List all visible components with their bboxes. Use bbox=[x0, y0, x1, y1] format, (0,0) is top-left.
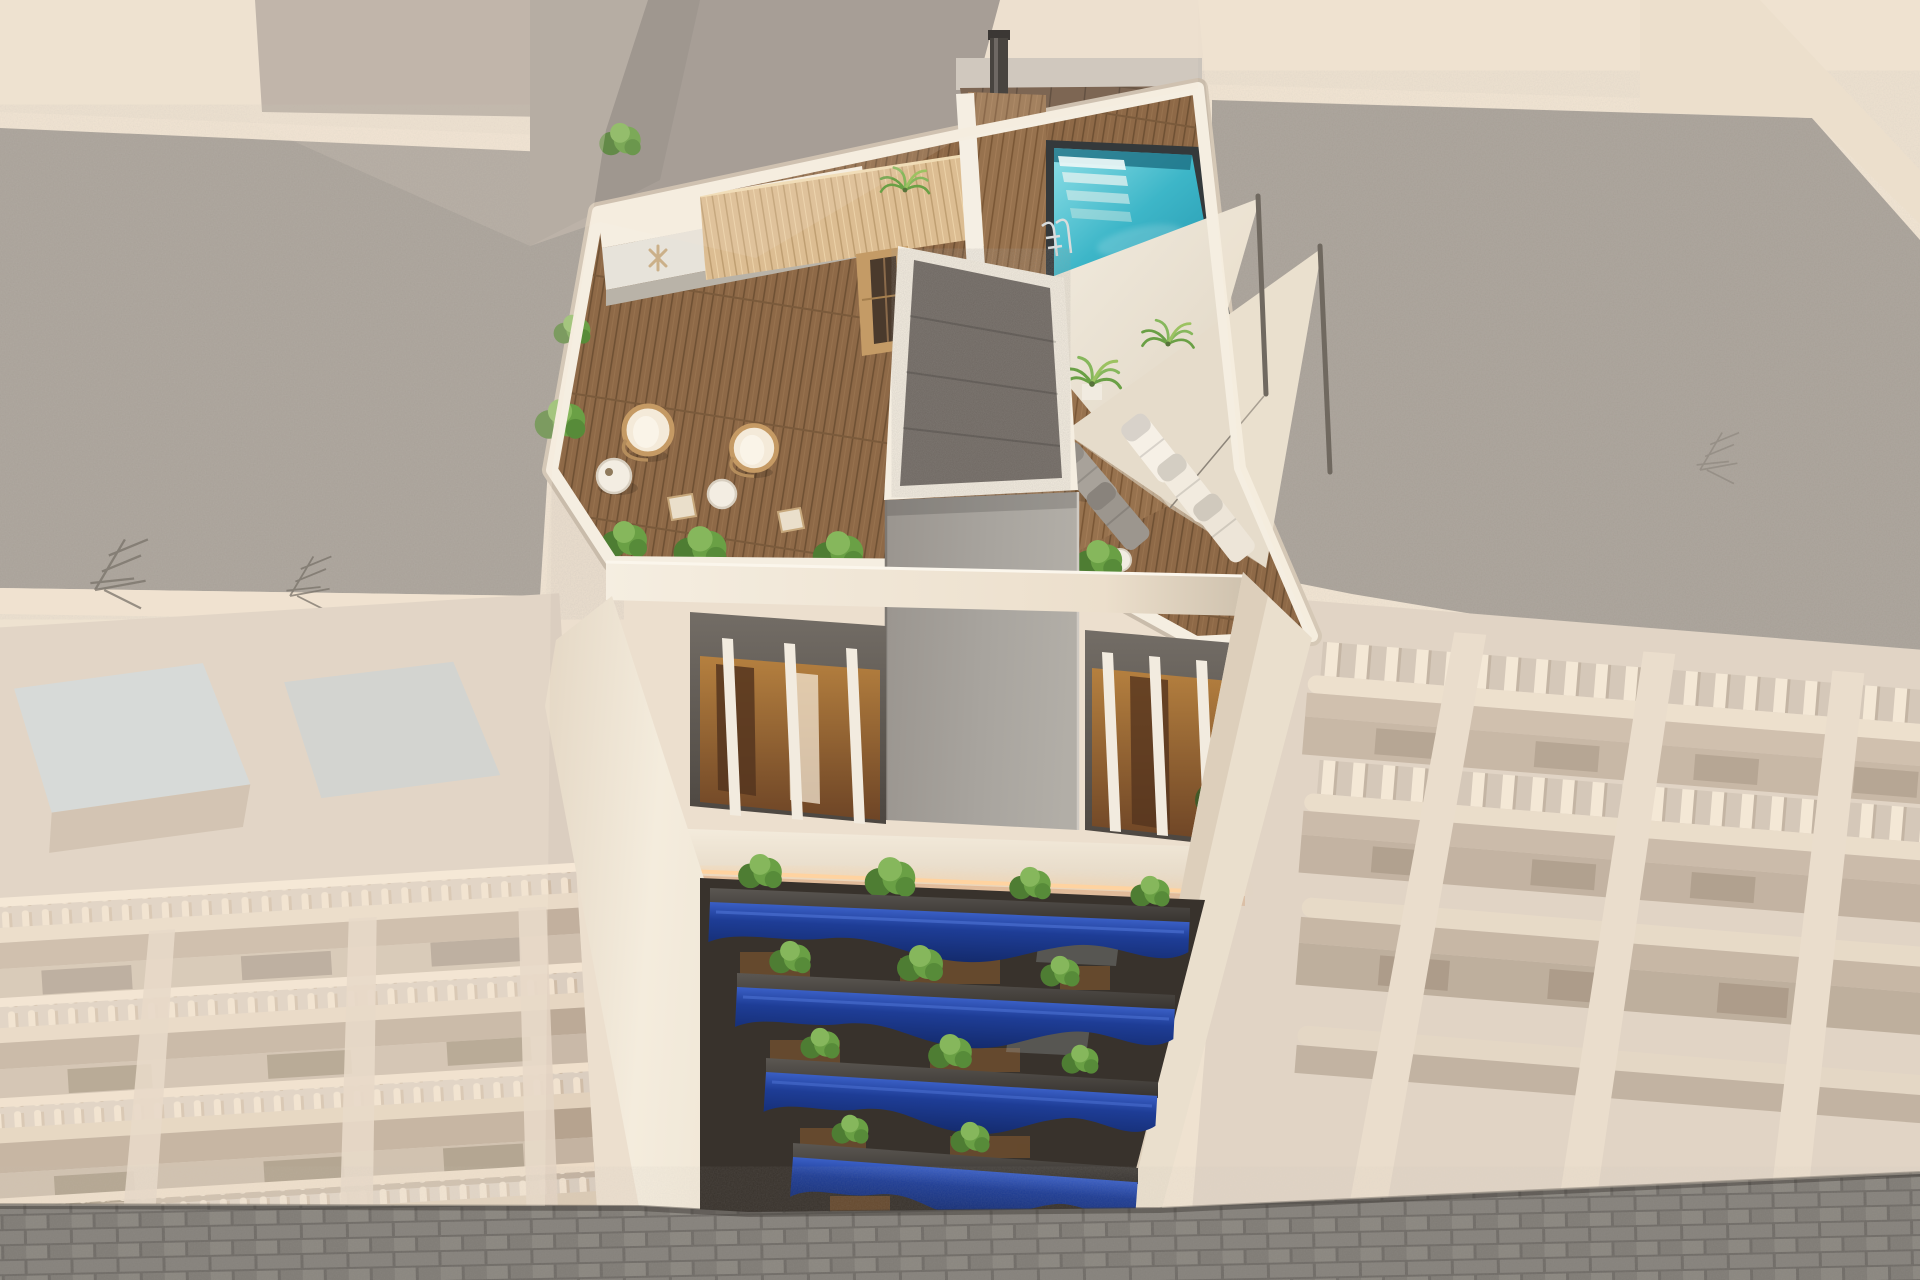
shaft-body bbox=[886, 492, 1078, 830]
round-table bbox=[708, 480, 736, 508]
slat-bay-left bbox=[690, 612, 886, 824]
hanging-egg-chair bbox=[731, 425, 777, 478]
bistro-chair bbox=[668, 494, 696, 520]
elevator-shaft bbox=[884, 246, 1078, 830]
render-stage bbox=[0, 0, 1920, 1280]
hanging-egg-chair bbox=[623, 406, 672, 462]
bistro-chair bbox=[778, 508, 804, 532]
render-canvas bbox=[0, 0, 1920, 1280]
round-table bbox=[597, 459, 631, 493]
